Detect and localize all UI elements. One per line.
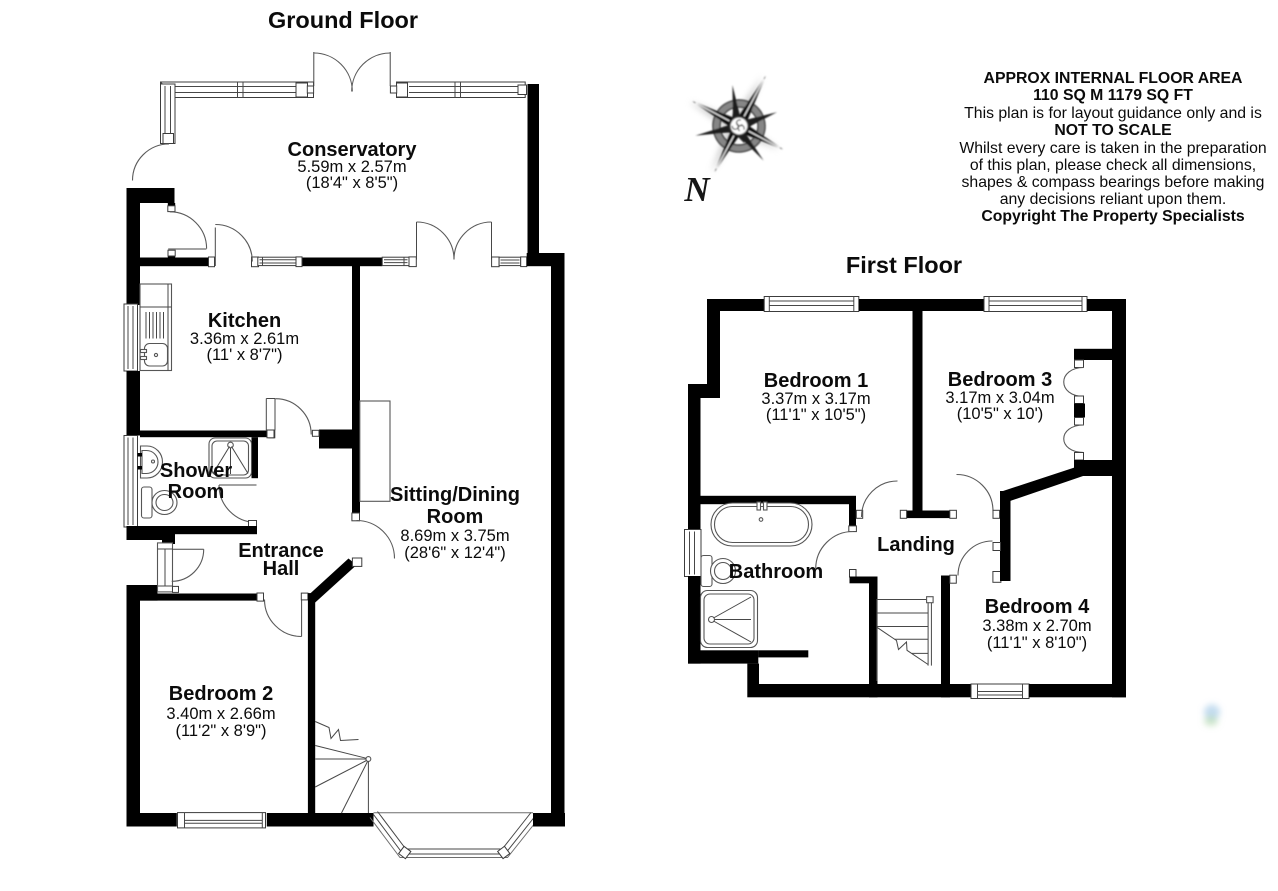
svg-text:(11'2" x 8'9"): (11'2" x 8'9") (175, 722, 266, 740)
svg-text:Whilst every care is taken in: Whilst every care is taken in the prepar… (959, 140, 1266, 157)
svg-text:Shower: Shower (160, 460, 232, 482)
svg-text:(28'6" x 12'4"): (28'6" x 12'4") (404, 544, 505, 562)
svg-text:Ground Floor: Ground Floor (268, 7, 418, 33)
svg-text:Hall: Hall (263, 558, 300, 580)
svg-text:This plan is for layout guidan: This plan is for layout guidance only an… (964, 105, 1262, 122)
svg-text:Bedroom 3: Bedroom 3 (948, 369, 1052, 391)
svg-text:3.38m x 2.70m: 3.38m x 2.70m (982, 617, 1091, 635)
svg-text:Room: Room (168, 481, 225, 503)
svg-text:Room: Room (427, 506, 484, 528)
svg-text:of this plan, please check all: of this plan, please check all dimension… (970, 157, 1256, 174)
svg-text:Bedroom 4: Bedroom 4 (985, 596, 1090, 618)
svg-text:110 SQ M 1179 SQ FT: 110 SQ M 1179 SQ FT (1033, 87, 1193, 104)
svg-text:(11'1" x 8'10"): (11'1" x 8'10") (987, 634, 1087, 652)
svg-text:(18'4" x 8'5"): (18'4" x 8'5") (306, 174, 398, 192)
svg-text:Bedroom 1: Bedroom 1 (764, 370, 868, 392)
svg-text:8.69m x 3.75m: 8.69m x 3.75m (400, 527, 509, 545)
svg-text:Bathroom: Bathroom (729, 561, 823, 583)
svg-text:APPROX INTERNAL FLOOR AREA: APPROX INTERNAL FLOOR AREA (984, 70, 1243, 87)
svg-text:any decisions reliant upon the: any decisions reliant upon them. (1000, 191, 1227, 208)
svg-text:NOT TO SCALE: NOT TO SCALE (1054, 122, 1171, 139)
svg-text:3.40m x 2.66m: 3.40m x 2.66m (166, 705, 275, 723)
svg-text:shapes & compass bearings befo: shapes & compass bearings before making (962, 174, 1265, 191)
svg-text:N: N (683, 170, 711, 209)
svg-text:Sitting/Dining: Sitting/Dining (390, 484, 520, 506)
svg-text:Copyright The Property Special: Copyright The Property Specialists (981, 208, 1245, 225)
svg-text:Kitchen: Kitchen (208, 310, 281, 332)
svg-text:(11' x 8'7"): (11' x 8'7") (206, 346, 282, 364)
svg-text:(10'5" x 10'): (10'5" x 10') (957, 405, 1043, 423)
svg-text:First Floor: First Floor (846, 252, 962, 278)
svg-text:Landing: Landing (877, 534, 955, 556)
svg-text:Bedroom 2: Bedroom 2 (169, 683, 273, 705)
svg-text:(11'1" x 10'5"): (11'1" x 10'5") (766, 406, 866, 424)
